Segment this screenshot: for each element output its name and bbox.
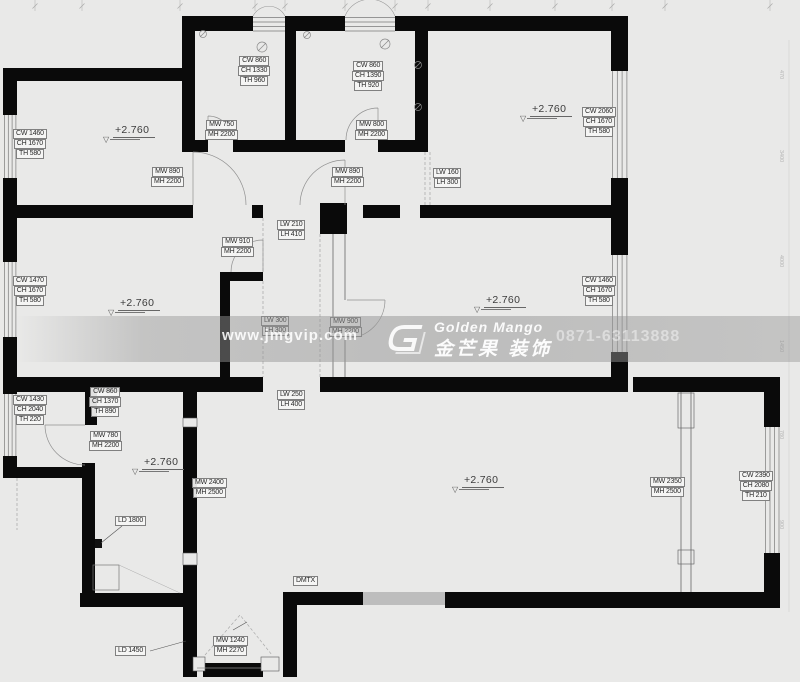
level-marker: +2.760▽ — [108, 293, 160, 316]
dimension-value: CW 1460 — [13, 129, 47, 140]
dimension-value: CH 1390 — [352, 71, 384, 82]
dimension-label: CW 860CH 1330TH 960 — [238, 56, 270, 86]
dimension-value: TH 920 — [354, 81, 382, 92]
dimension-value: LW 250 — [277, 390, 305, 401]
dimension-value: CW 860 — [353, 61, 383, 72]
watermark-brand-cn: 金芒果 装饰 — [434, 334, 552, 361]
dimension-value: TH 580 — [585, 127, 613, 138]
glass-partition — [333, 234, 691, 592]
dimension-value: CH 1670 — [14, 286, 46, 297]
dimension-value: LW 160 — [433, 168, 461, 179]
dimension-label: MW 1240MH 2270 — [213, 636, 248, 656]
dimension-value: MW 890 — [332, 167, 363, 178]
level-marker: +2.760▽ — [452, 470, 504, 493]
dimension-label: CW 1430CH 2040TH 220 — [13, 395, 47, 425]
dimension-label: CW 2390CH 2080TH 210 — [739, 471, 773, 501]
top-dimension-ticks — [33, 0, 773, 11]
dimension-value: MW 2400 — [192, 478, 227, 489]
dimension-label: LW 250LH 400 — [277, 390, 305, 410]
light-wall-piece — [363, 592, 445, 605]
dimension-label: CW 860CH 1370TH 890 — [89, 387, 121, 417]
level-marker: +2.760▽ — [132, 452, 184, 475]
dimension-value: MH 2270 — [214, 646, 247, 657]
dimension-value: CW 2390 — [739, 471, 773, 482]
dimension-label: LW 160LH 300 — [433, 168, 461, 188]
dimension-value: LW 210 — [277, 220, 305, 231]
dimension-value: TH 890 — [91, 407, 119, 418]
dimension-label: MW 910MH 2200 — [221, 237, 254, 257]
dimension-value: CW 860 — [239, 56, 269, 67]
edge-dimension: 3400 — [778, 150, 784, 162]
dimension-value: CW 1470 — [13, 276, 47, 287]
dimension-label: LD 1800 — [115, 516, 146, 526]
watermark-brand-en: Golden Mango — [434, 319, 543, 335]
dimension-value: MW 750 — [206, 120, 237, 131]
dimension-value: MH 2200 — [221, 247, 254, 258]
golden-mango-logo-icon — [380, 319, 426, 364]
dimension-value: TH 220 — [16, 415, 44, 426]
dimension-value: MW 780 — [90, 431, 121, 442]
dimension-label: CW 2060CH 1670TH 580 — [582, 107, 616, 137]
dimension-label: MW 2350MH 2500 — [650, 477, 685, 497]
dimension-value: MW 1240 — [213, 636, 248, 647]
dimension-label: MW 2400MH 2500 — [192, 478, 227, 498]
dimension-value: TH 210 — [742, 491, 770, 502]
dimension-value: CW 1460 — [582, 276, 616, 287]
dimension-label: CW 1460CH 1670TH 580 — [582, 276, 616, 306]
dimension-label: CW 1470CH 1670TH 580 — [13, 276, 47, 306]
dimension-value: TH 580 — [585, 296, 613, 307]
watermark-band: www.jmgvip.com Golden Mango 金芒果 装饰 0871-… — [0, 316, 800, 362]
dimension-label: MW 750MH 2200 — [205, 120, 238, 140]
window-symbols — [5, 0, 780, 553]
dimension-value: TH 580 — [16, 296, 44, 307]
edge-dimension: 780 — [778, 430, 784, 439]
watermark-phone: 0871-63113888 — [556, 328, 680, 346]
dimension-value: MW 890 — [152, 167, 183, 178]
dimension-value: LH 400 — [278, 400, 305, 411]
dimension-value: CW 2060 — [582, 107, 616, 118]
dimension-label: MW 890MH 2200 — [151, 167, 184, 187]
dimension-value: CW 860 — [90, 387, 120, 398]
dimension-value: TH 960 — [240, 76, 268, 87]
edge-dimension: 900 — [778, 520, 784, 529]
dimension-value: LD 1450 — [115, 646, 146, 657]
dimension-label: CW 1460CH 1670TH 580 — [13, 129, 47, 159]
dimension-value: CH 2080 — [740, 481, 772, 492]
dimension-value: MH 2500 — [193, 488, 226, 499]
watermark-website: www.jmgvip.com — [222, 327, 358, 344]
dimension-value: LH 410 — [278, 230, 305, 241]
edge-dimension: 470 — [778, 70, 784, 79]
dimension-label: MW 890MH 2200 — [331, 167, 364, 187]
dimension-value: MW 800 — [356, 120, 387, 131]
dimension-label: CW 860CH 1390TH 920 — [352, 61, 384, 91]
dimension-value: DMTX — [293, 576, 318, 587]
level-marker: +2.760▽ — [520, 99, 572, 122]
dimension-value: LD 1800 — [115, 516, 146, 527]
edge-dimension: 4000 — [778, 255, 784, 267]
dimension-value: MH 2200 — [205, 130, 238, 141]
dimension-value: CH 1370 — [89, 397, 121, 408]
dimension-value: CH 1330 — [238, 66, 270, 77]
dimension-label: LD 1450 — [115, 646, 146, 656]
dimension-value: LH 300 — [434, 178, 461, 189]
dimension-label: MW 800MH 2200 — [355, 120, 388, 140]
level-marker: +2.760▽ — [103, 120, 155, 143]
misc-outlines — [93, 526, 247, 651]
dimension-label: MW 780MH 2200 — [89, 431, 122, 451]
dimension-value: MW 2350 — [650, 477, 685, 488]
dimension-value: CW 1430 — [13, 395, 47, 406]
dimension-value: TH 580 — [16, 149, 44, 160]
level-marker: +2.760▽ — [474, 290, 526, 313]
fixture-symbols — [200, 31, 422, 111]
dimension-value: MH 2200 — [89, 441, 122, 452]
dimension-value: CH 1670 — [583, 117, 615, 128]
dimension-value: CH 2040 — [14, 405, 46, 416]
floorplan-canvas: CW 860CH 1330TH 960CW 860CH 1390TH 920CW… — [0, 0, 800, 682]
dimension-value: MH 2200 — [151, 177, 184, 188]
dimension-label: DMTX — [293, 576, 318, 586]
dimension-value: MH 2200 — [355, 130, 388, 141]
door-jambs — [183, 393, 694, 671]
dimension-value: MH 2200 — [331, 177, 364, 188]
dimension-value: CH 1670 — [14, 139, 46, 150]
dimension-value: MW 910 — [222, 237, 253, 248]
dimension-value: MH 2500 — [651, 487, 684, 498]
dimension-value: CH 1670 — [583, 286, 615, 297]
dimension-label: LW 210LH 410 — [277, 220, 305, 240]
